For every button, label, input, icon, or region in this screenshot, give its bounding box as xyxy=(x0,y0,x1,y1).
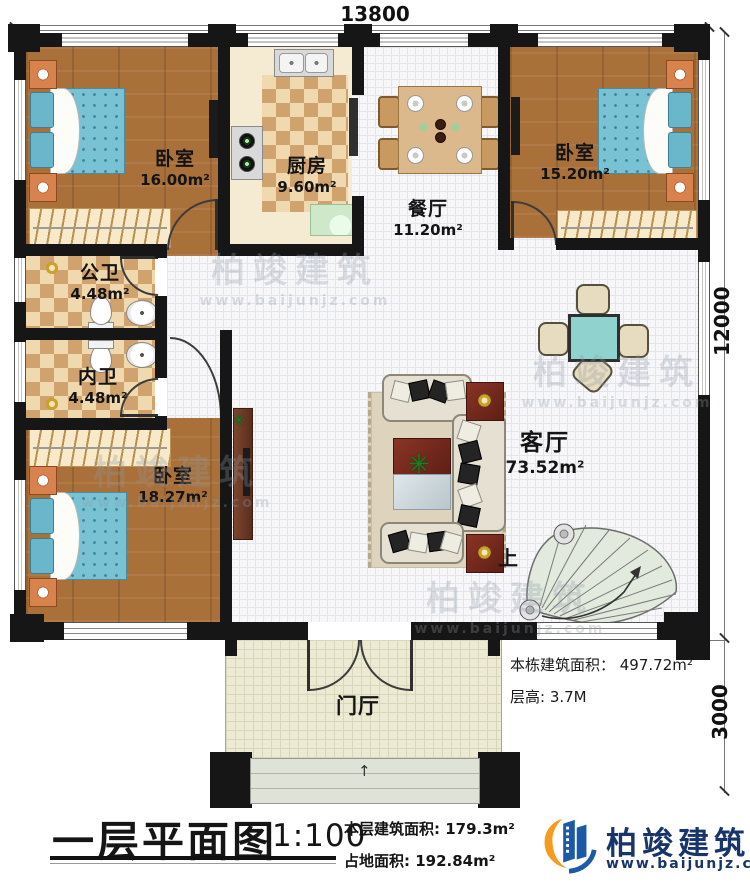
dimension-top-width: 13800 xyxy=(320,2,430,26)
dimension-right-porch: 3000 xyxy=(708,680,732,744)
wall-bedroom-tr-bottom xyxy=(556,238,710,250)
door-leaf xyxy=(307,640,310,691)
sink xyxy=(126,300,158,326)
dimension-line-right xyxy=(724,33,725,793)
stairs-up-label: 上 xyxy=(498,542,518,571)
dimension-right-main: 12000 xyxy=(710,292,734,356)
room-label-bath-public: 公卫 4.48m² xyxy=(50,262,150,303)
porch-wall-stub-right xyxy=(488,640,500,656)
tv xyxy=(243,448,250,496)
dining-table xyxy=(398,86,482,174)
footer-floor-area: 本层建筑面积: 179.3m² xyxy=(344,818,515,839)
wardrobe xyxy=(29,428,171,467)
floor-plan-canvas: 13800 12000 3000 xyxy=(0,0,750,885)
nightstand xyxy=(29,173,57,202)
footer-footprint-area: 占地面积: 192.84m² xyxy=(344,850,495,871)
window xyxy=(248,33,338,47)
corner-column xyxy=(8,24,40,52)
corner-column xyxy=(10,614,44,642)
wall-between-baths xyxy=(14,328,155,340)
dining-chair xyxy=(378,96,400,128)
window xyxy=(64,622,187,640)
plant: ✳ xyxy=(408,450,430,480)
porch-pillar-right xyxy=(478,752,520,808)
wall-bath-bedroom-bl xyxy=(14,418,167,430)
room-label-foyer: 门厅 xyxy=(308,694,408,719)
porch-pillar-left xyxy=(210,752,252,808)
room-label-bath-private: 内卫 4.48m² xyxy=(48,366,148,407)
cutting-board xyxy=(310,204,354,236)
window xyxy=(14,342,26,402)
kitchen-sink xyxy=(274,49,334,77)
kitchen-door-panel xyxy=(349,98,358,156)
wall-kitchen-dining-top xyxy=(352,47,364,95)
wall-bath-right xyxy=(155,244,167,258)
sofa-bottom xyxy=(380,522,464,564)
bed-pillow xyxy=(30,132,54,168)
wall-pier xyxy=(208,24,236,47)
nightstand xyxy=(29,466,57,495)
room-label-bedroom-tr: 卧室 15.20m² xyxy=(525,142,625,183)
annotation-floor-height: 层高: 3.7M xyxy=(510,686,587,707)
window xyxy=(698,60,710,200)
card-chair xyxy=(576,284,610,315)
side-table-medallion xyxy=(478,546,491,559)
annotation-building-area: 本栋建筑面积： 497.72m² xyxy=(510,654,693,675)
room-label-dining: 餐厅 11.20m² xyxy=(378,198,478,239)
title-underline-thin xyxy=(50,863,336,864)
window xyxy=(538,33,662,47)
nightstand xyxy=(29,578,57,607)
nightstand xyxy=(666,60,694,89)
porch-wall-stub-left xyxy=(225,640,237,656)
room-label-bedroom-bl: 卧室 18.27m² xyxy=(123,465,223,506)
title-underline xyxy=(50,856,336,860)
side-table-medallion xyxy=(478,394,491,407)
room-label-living: 客厅 73.52m² xyxy=(495,430,595,478)
step-arrow-icon: ↑ xyxy=(358,762,371,780)
card-chair xyxy=(618,324,649,358)
tv xyxy=(511,97,520,155)
card-chair xyxy=(538,322,569,356)
bed-pillow xyxy=(30,538,54,574)
door-leaf xyxy=(120,256,158,259)
room-label-bedroom-tl: 卧室 16.00m² xyxy=(125,148,225,189)
window xyxy=(14,480,26,590)
bed-pillow xyxy=(668,92,692,128)
brand-website: www.baijunjz.com xyxy=(606,856,750,872)
door-leaf xyxy=(120,414,158,417)
door-leaf xyxy=(410,640,413,691)
window xyxy=(698,262,710,395)
bed-pillow xyxy=(668,132,692,168)
corner-column xyxy=(674,24,710,52)
window xyxy=(14,258,26,302)
window xyxy=(14,80,26,180)
nightstand xyxy=(666,173,694,202)
bed-pillow xyxy=(30,498,54,534)
room-label-kitchen: 厨房 9.60m² xyxy=(257,155,357,196)
wall-h-kitchen xyxy=(218,244,364,256)
wall-bedroom-tr-left xyxy=(498,47,510,250)
wall-pier xyxy=(344,24,372,47)
bed-pillow xyxy=(30,92,54,128)
wall-pier xyxy=(490,24,518,47)
wall-bath-right xyxy=(155,296,167,378)
window xyxy=(537,622,657,640)
plant: ✳ xyxy=(233,413,245,429)
card-table xyxy=(568,314,620,362)
brand-logo-icon xyxy=(538,814,600,876)
nightstand xyxy=(29,60,57,89)
toilet-tank xyxy=(88,340,114,349)
window xyxy=(380,33,468,47)
wardrobe xyxy=(29,208,171,248)
wall-h-bedroom-tl xyxy=(14,244,167,256)
window xyxy=(62,33,188,47)
sink xyxy=(126,342,158,368)
wall-bedroom-tr-corner xyxy=(498,238,514,250)
dining-chair xyxy=(378,138,400,170)
